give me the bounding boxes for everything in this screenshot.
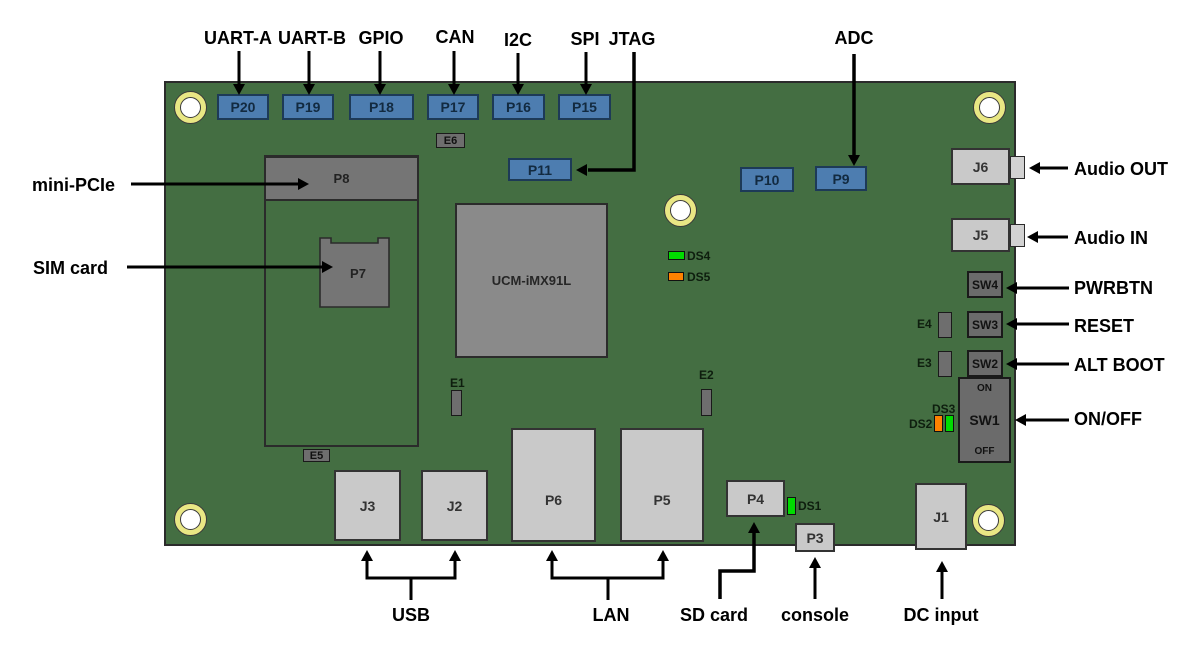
svg-text:P7: P7 (350, 266, 366, 281)
